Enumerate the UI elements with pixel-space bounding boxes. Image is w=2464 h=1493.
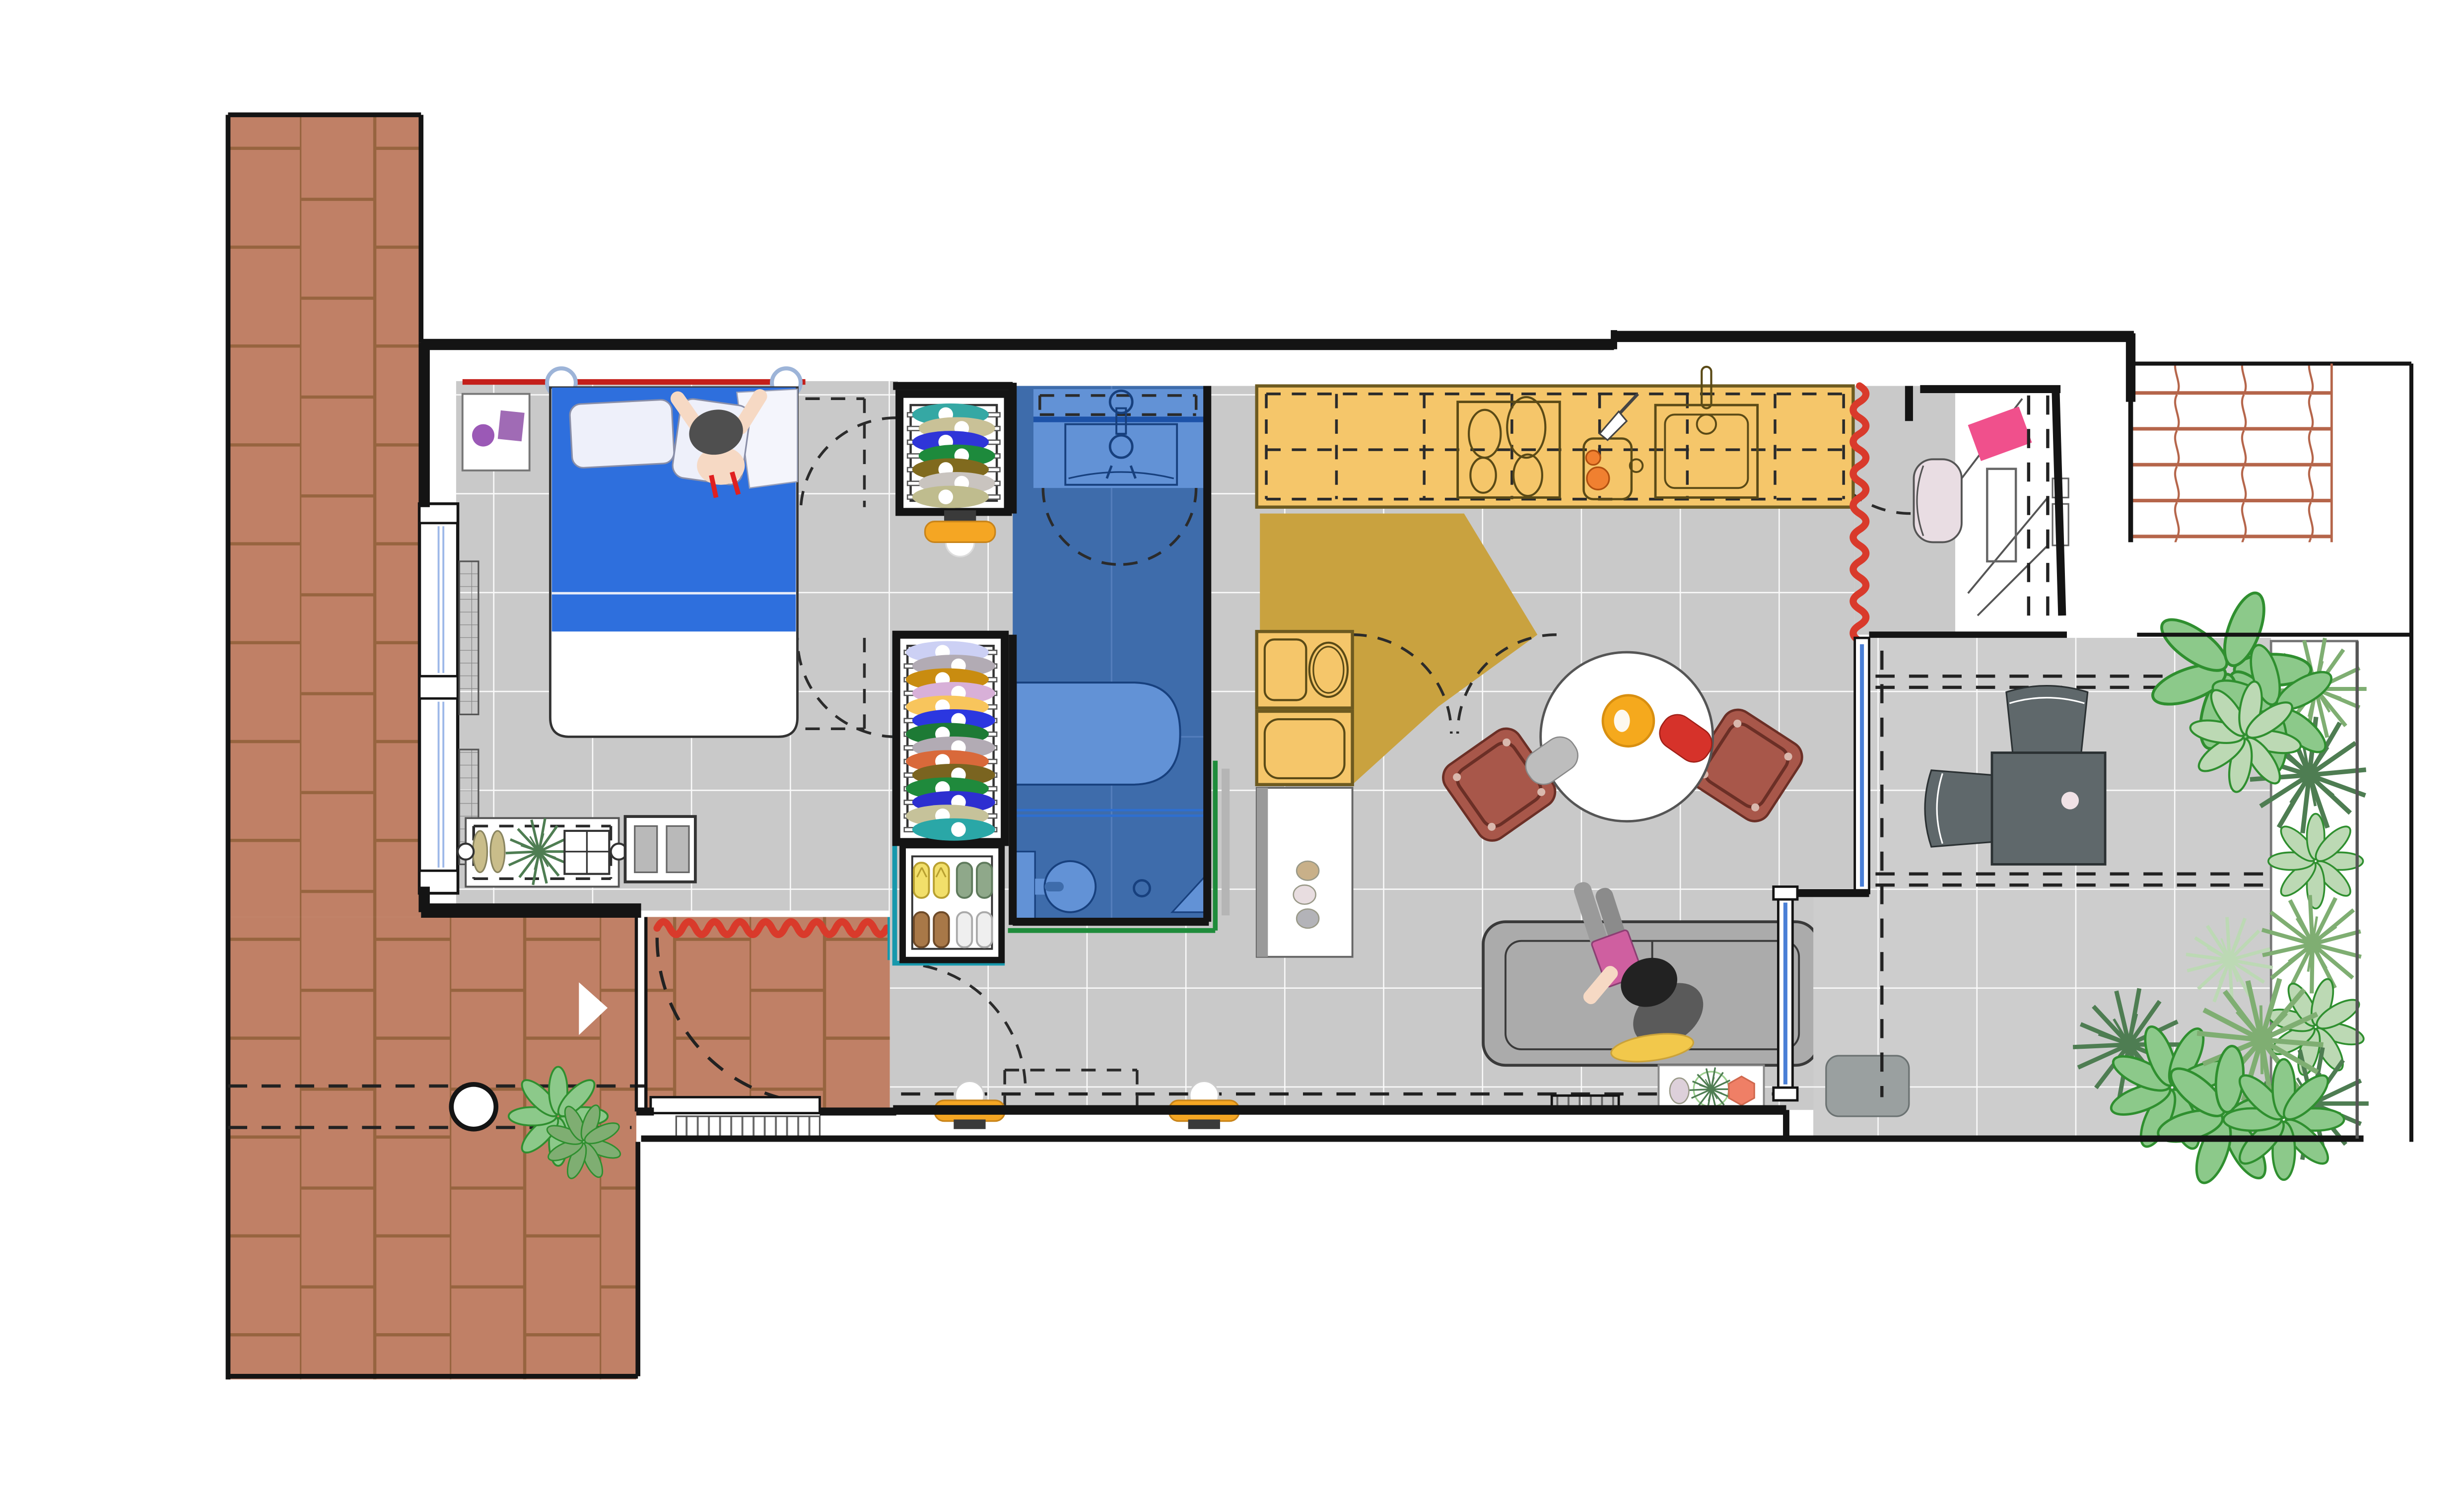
- bedroom-sideboard: [458, 818, 627, 886]
- entry-door-mat: [676, 1116, 820, 1139]
- floor-plan-page: [0, 0, 2464, 1493]
- coral-hexagon: [1729, 1077, 1754, 1105]
- bed: [550, 387, 797, 737]
- entry-hall: [636, 917, 890, 1139]
- tomato: [1587, 467, 1609, 489]
- bathtub: [1016, 682, 1180, 785]
- entry-door-leaf: [651, 1097, 820, 1113]
- kitchen-counter-top: [1257, 386, 1853, 507]
- nook-armchair: [1914, 459, 1962, 542]
- nightstand: [463, 394, 530, 471]
- wardrobe-clothes: [904, 641, 997, 841]
- terrace-brick-strip: [228, 115, 421, 917]
- sliding-door-panel: [1222, 769, 1230, 916]
- pergola-grid: [2130, 364, 2411, 543]
- pergola-tiles: [2130, 364, 2331, 543]
- floor-plan-canvas: [0, 0, 2464, 1493]
- entry-hall-floor: [646, 917, 890, 1110]
- bathroom: [1013, 386, 1230, 922]
- patio-table: [1992, 753, 2105, 865]
- pillow-left: [569, 399, 675, 468]
- terrace-round-table: [451, 1085, 496, 1129]
- shoe-cabinet: [903, 845, 1002, 960]
- bedroom-cabinet: [625, 816, 695, 882]
- kitchen-lower-counter: [1257, 631, 1353, 784]
- coat-closet: [899, 394, 1008, 512]
- bedroom-window: [419, 504, 458, 893]
- bedroom-radiator: [459, 561, 479, 714]
- fruit: [1614, 710, 1630, 732]
- hall-terrace-wall: [636, 917, 646, 1111]
- tomato-slice: [1586, 451, 1600, 465]
- kitchen-island: [1257, 788, 1353, 957]
- knob-icon: [458, 844, 474, 860]
- patio-bench: [1826, 1056, 1909, 1116]
- plate: [2061, 792, 2079, 809]
- main-wardrobe: [896, 635, 1005, 842]
